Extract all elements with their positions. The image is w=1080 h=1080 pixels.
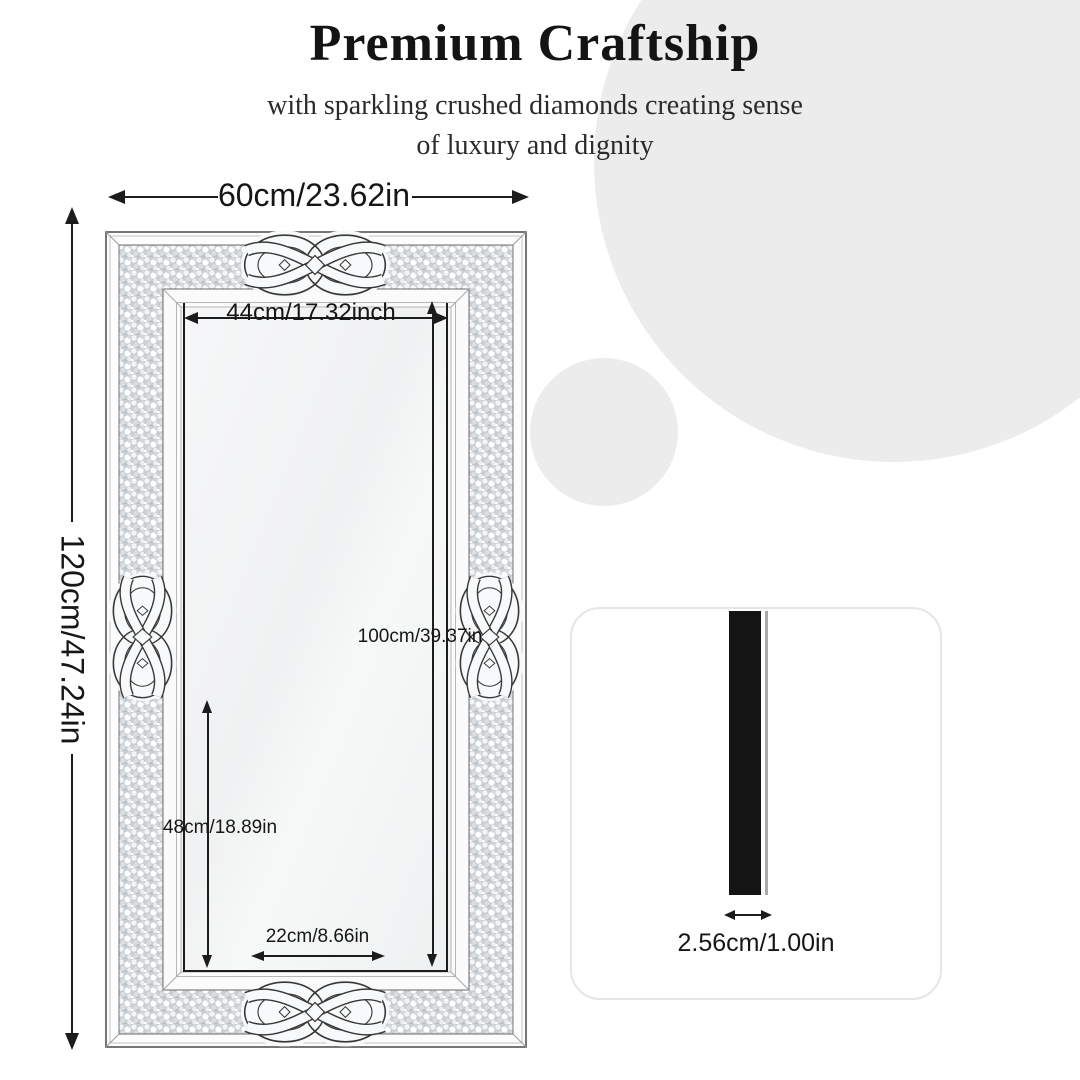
dim-line [71, 222, 73, 522]
extension-line-bottom [183, 970, 448, 972]
dim-line [263, 955, 373, 957]
background-circle-small [530, 358, 678, 506]
side-view-mirror-bar [729, 611, 761, 895]
dim-line [71, 754, 73, 1036]
arrow-right-head [372, 951, 385, 961]
side-view-card: 2.56cm/1.00in [570, 607, 942, 1000]
arrow-down-head [427, 954, 437, 967]
knot-decoration-bottom [241, 977, 389, 1046]
arrow-right-head [512, 190, 529, 204]
page-title: Premium Craftship [185, 14, 885, 74]
thickness-label: 2.56cm/1.00in [626, 929, 886, 958]
arrow-left-head [184, 312, 198, 324]
arrow-down-head [202, 955, 212, 968]
bottom-width-label: 22cm/8.66in [240, 926, 395, 948]
product-dimension-infographic: Premium Craftship with sparkling crushed… [0, 0, 1080, 1080]
thickness-dim-line [734, 914, 762, 916]
header: Premium Craftship with sparkling crushed… [185, 14, 885, 166]
knot-decoration-left [109, 573, 177, 701]
arrow-right-head [761, 910, 772, 920]
subtitle-line-2: of luxury and dignity [185, 126, 885, 166]
lower-height-label: 48cm/18.89in [136, 817, 304, 839]
side-view-mirror-edge-line [765, 611, 768, 895]
inner-height-label: 100cm/39.37in [332, 626, 508, 648]
extension-line-left [183, 303, 185, 972]
subtitle-line-1: with sparkling crushed diamonds creating… [185, 86, 885, 126]
inner-width-label: 44cm/17.32inch [206, 299, 416, 327]
dim-line [412, 196, 512, 198]
outer-width-label: 60cm/23.62in [204, 177, 424, 214]
knot-decoration-top [241, 230, 389, 299]
subtitle: with sparkling crushed diamonds creating… [185, 86, 885, 166]
arrow-down-head [65, 1033, 79, 1050]
outer-height-label: 120cm/47.24in [54, 523, 91, 757]
